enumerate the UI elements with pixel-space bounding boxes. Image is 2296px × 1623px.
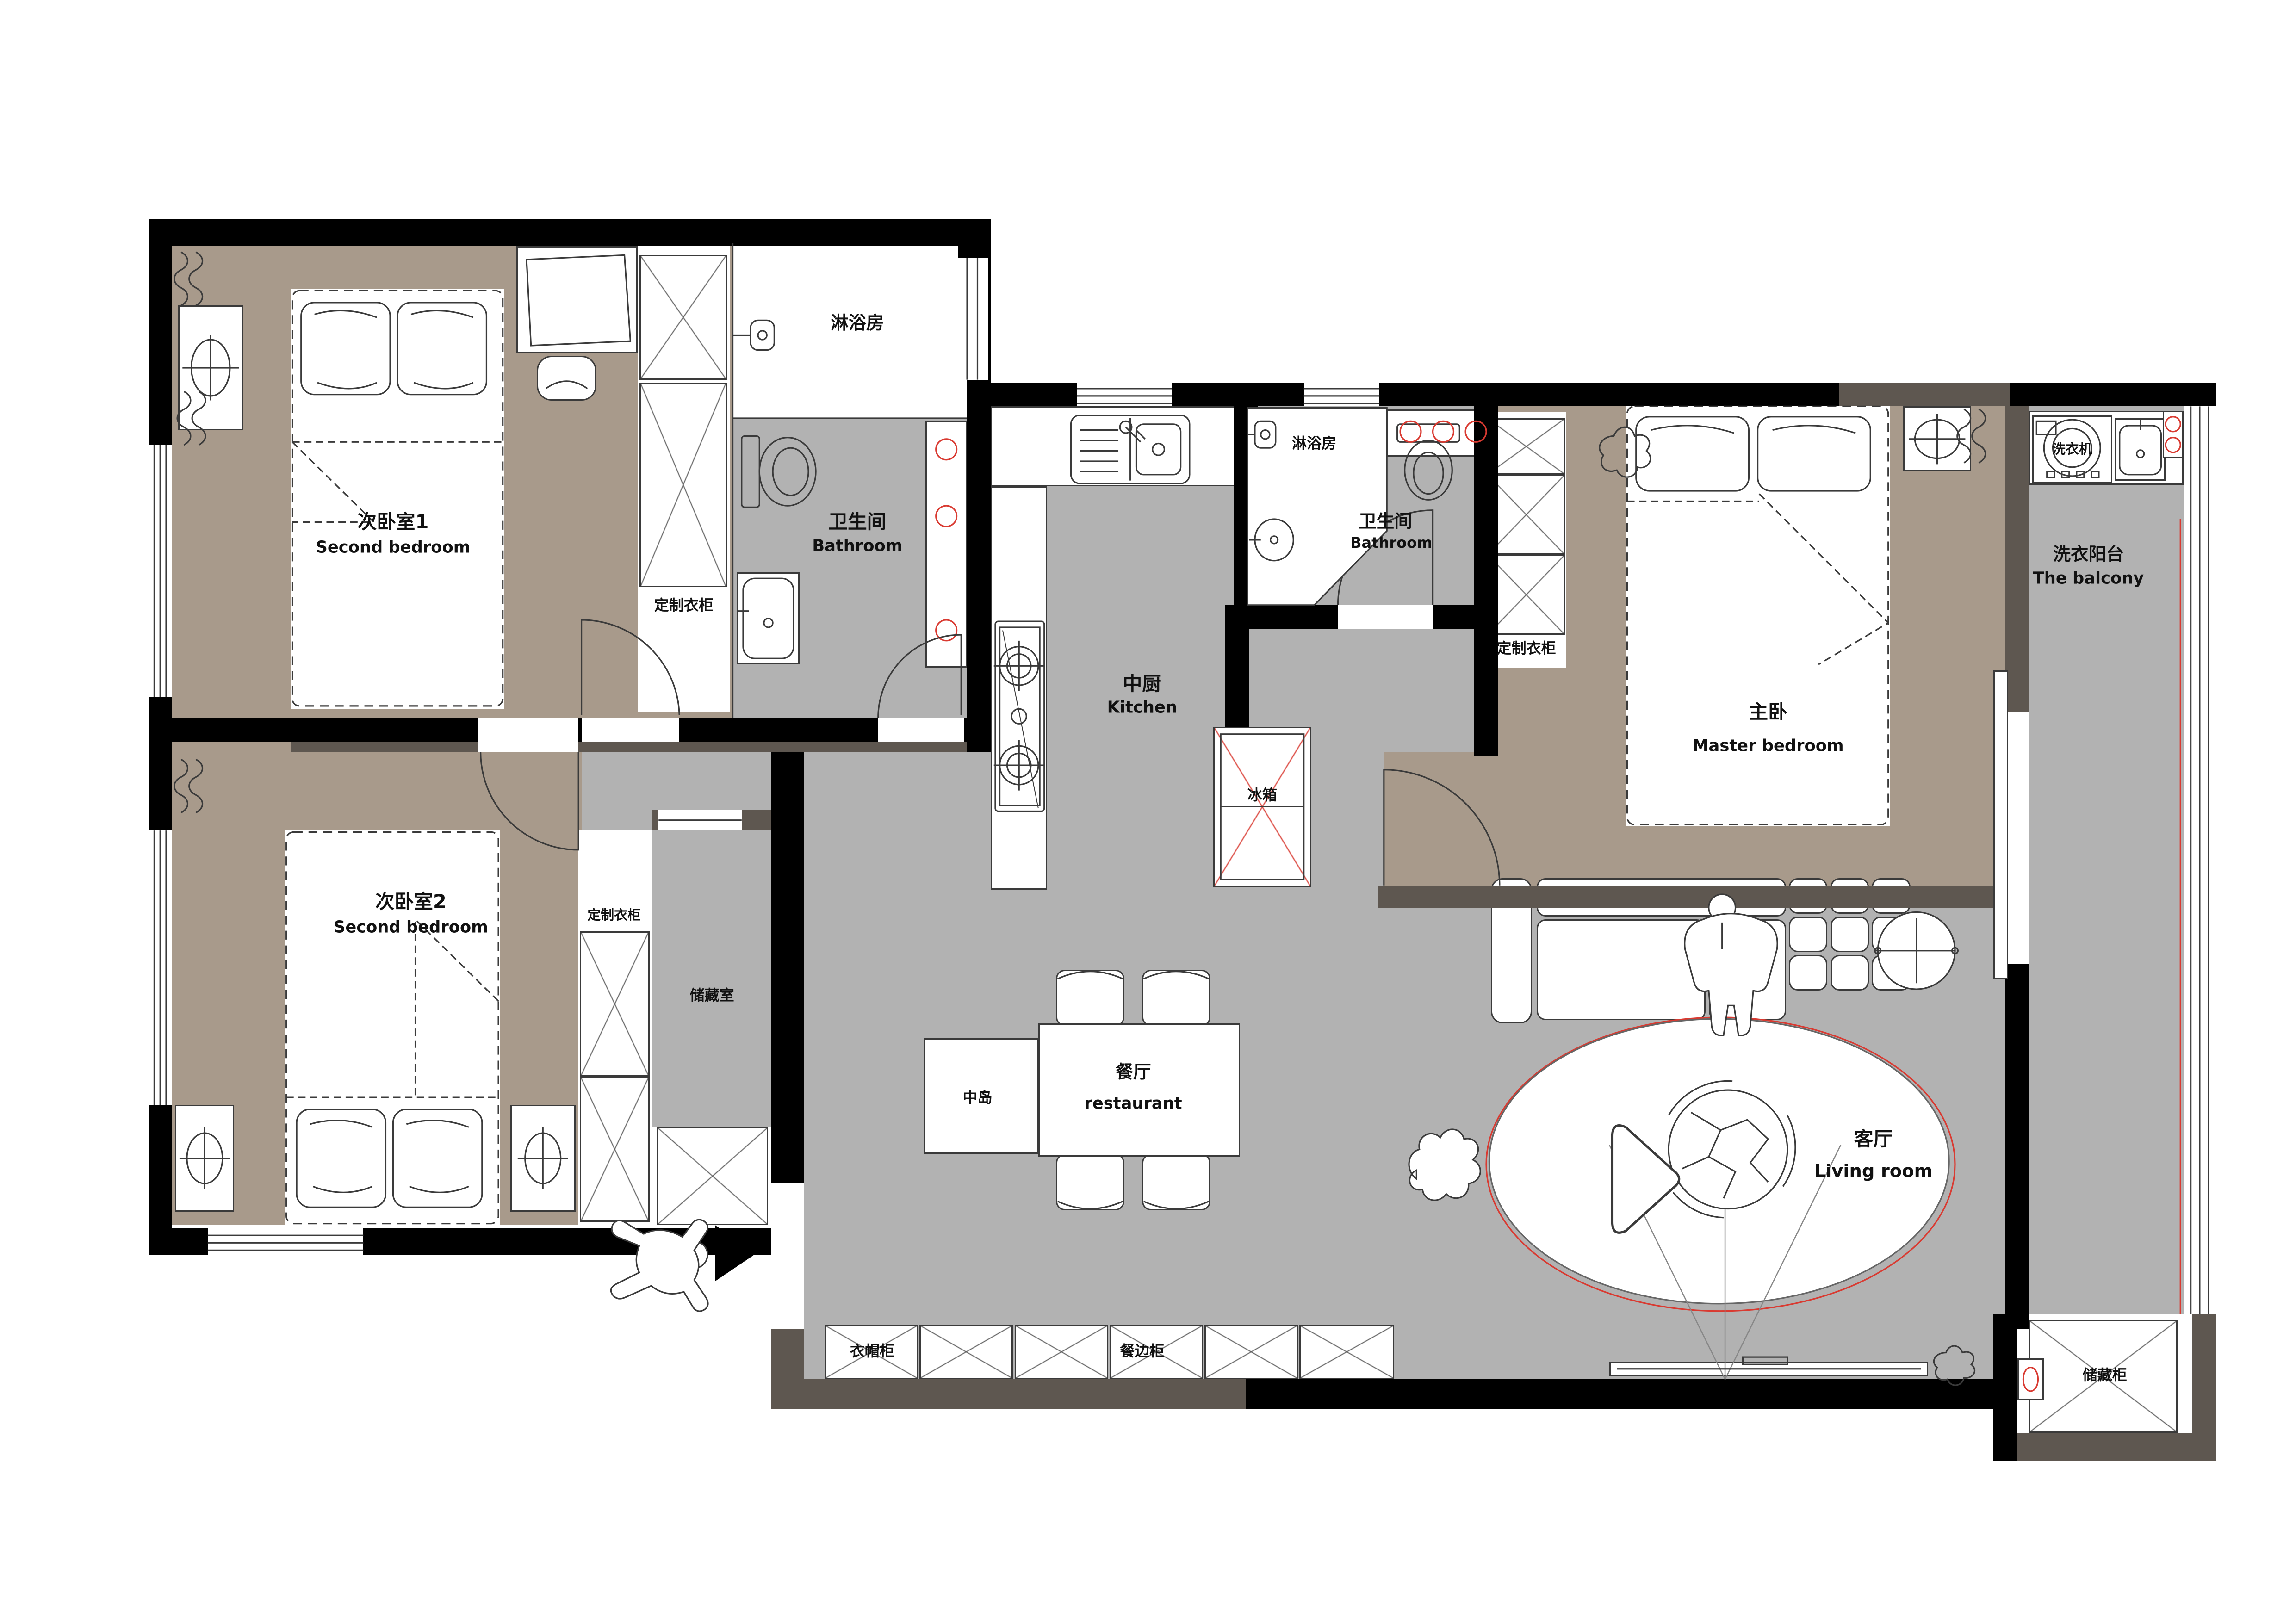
wardrobe1-box-top xyxy=(639,255,727,379)
wall xyxy=(149,752,172,830)
balcony-red-fixture xyxy=(2163,411,2184,458)
window-bedroom2-bottom xyxy=(208,1228,364,1255)
label-bedroom1-en: Second bedroom xyxy=(316,539,471,555)
fridge-box xyxy=(1213,727,1311,887)
partition-wall xyxy=(771,1329,804,1382)
bathroom2-door-opening xyxy=(1338,605,1433,629)
label-dining-zh: 餐厅 xyxy=(1116,1063,1151,1081)
label-kitchen-zh: 中厨 xyxy=(1123,674,1161,694)
window-kitchen xyxy=(1077,383,1172,406)
label-wardrobe1: 定制衣柜 xyxy=(654,598,714,613)
wardrobe2-box1 xyxy=(580,931,650,1077)
label-sideboard: 餐边柜 xyxy=(1120,1344,1164,1358)
bedroom1-door-opening xyxy=(582,718,680,742)
nightstand-bedroom1 xyxy=(178,305,243,430)
balcony-sink xyxy=(2115,418,2166,481)
label-bedroom2-en: Second bedroom xyxy=(334,919,488,935)
label-bathroom1-en: Bathroom xyxy=(812,538,902,554)
label-wardrobe-master: 定制衣柜 xyxy=(1496,641,1556,656)
storage-room-floor xyxy=(652,830,771,1127)
sofa-seat-2 xyxy=(1709,919,1786,1020)
partition-wall xyxy=(291,742,991,752)
wall xyxy=(1225,605,1249,727)
niche-red-fixture xyxy=(2017,1358,2044,1400)
cabinet-box xyxy=(919,1325,1013,1380)
balcony-door-opening xyxy=(2005,712,2029,964)
balcony-floor xyxy=(2029,406,2183,1314)
label-master-en: Master bedroom xyxy=(1692,738,1843,754)
wardrobe2-box2 xyxy=(580,1077,650,1222)
wall xyxy=(991,383,1498,406)
sofa-cushion xyxy=(1831,955,1869,991)
label-kitchen-en: Kitchen xyxy=(1107,699,1177,715)
window-bathroom2 xyxy=(1304,383,1379,406)
label-wardrobe2: 定制衣柜 xyxy=(587,908,640,922)
storage-door-opening xyxy=(658,810,742,830)
bath1-basin xyxy=(737,572,800,664)
wardrobe-master-box1 xyxy=(1488,418,1565,475)
label-dining-en: restaurant xyxy=(1085,1095,1182,1111)
label-master-zh: 主卧 xyxy=(1749,702,1787,722)
window-bedroom1 xyxy=(149,445,172,697)
partition-wall xyxy=(1839,383,2010,406)
partition-wall xyxy=(1378,886,1492,908)
partition-wall xyxy=(771,1379,1246,1409)
cabinet-box xyxy=(1015,1325,1108,1380)
nightstand-bedroom2-left xyxy=(175,1105,234,1212)
window-balcony xyxy=(2184,406,2213,1314)
label-cloak-cabinet: 衣帽柜 xyxy=(850,1344,894,1358)
bed1-fill xyxy=(291,289,504,709)
wardrobe1-box-bottom xyxy=(639,383,727,587)
label-living-en: Living room xyxy=(1814,1163,1933,1180)
wall xyxy=(1246,1379,2017,1409)
kitchen-counter-left xyxy=(991,486,1047,890)
partition-wall xyxy=(2017,1433,2216,1461)
wall xyxy=(1234,406,1258,605)
wall xyxy=(149,219,991,246)
wardrobe-master-box2 xyxy=(1488,475,1565,555)
partition-wall xyxy=(2005,406,2029,712)
label-balcony-en: The balcony xyxy=(2033,570,2144,587)
label-island: 中岛 xyxy=(962,1090,992,1105)
cabinet-box xyxy=(1204,1325,1298,1380)
label-shower1: 淋浴房 xyxy=(831,315,884,332)
tv-console xyxy=(1609,1362,1928,1376)
cabinet-box xyxy=(1299,1325,1394,1380)
bathroom1-door-opening xyxy=(878,718,964,742)
label-bedroom2-zh: 次卧室2 xyxy=(375,892,447,911)
duct-cap xyxy=(958,246,988,258)
label-bathroom2-zh: 卫生间 xyxy=(1359,513,1412,531)
label-balcony-zh: 洗衣阳台 xyxy=(2053,546,2124,564)
label-fridge: 冰箱 xyxy=(1247,787,1277,802)
partition-wall xyxy=(1492,886,2010,908)
balcony-door-leaf xyxy=(1993,670,2008,979)
nightstand-master xyxy=(1903,406,1971,471)
wall xyxy=(2010,383,2216,406)
dining-chair-1 xyxy=(1056,970,1124,1026)
dining-chair-4 xyxy=(1142,1154,1210,1210)
bed2-fill xyxy=(285,830,500,1225)
wall xyxy=(2005,964,2029,1329)
sofa-cushion xyxy=(1789,917,1827,952)
label-washing-machine: 洗衣机 xyxy=(2052,443,2092,456)
nightstand-bedroom2-right xyxy=(510,1105,576,1212)
sofa-cushion xyxy=(1789,955,1827,991)
storage-low-cabinet xyxy=(657,1127,768,1225)
sofa-cushion xyxy=(1872,955,1910,991)
duct-shaft xyxy=(958,258,988,380)
label-living-zh: 客厅 xyxy=(1854,1129,1893,1149)
entry-door xyxy=(771,1183,804,1329)
sofa-cushion xyxy=(1872,917,1910,952)
label-bedroom1-zh: 次卧室1 xyxy=(357,513,428,532)
stool-bedroom1 xyxy=(537,356,596,400)
wall xyxy=(771,752,804,1183)
bath1-counter xyxy=(925,421,967,667)
sofa-seat-1 xyxy=(1537,919,1706,1020)
partition-wall xyxy=(2192,1314,2216,1432)
window-bedroom2-left xyxy=(149,830,172,1105)
master-bed-fill xyxy=(1626,405,1890,826)
floor-plan: 次卧室1 Second bedroom 淋浴房 卫生间 Bathroom 定制衣… xyxy=(0,0,2296,1623)
kitchen-counter-top xyxy=(991,406,1246,486)
label-bathroom1-zh: 卫生间 xyxy=(828,513,886,532)
label-storage-room: 储藏室 xyxy=(690,988,734,1003)
label-shower2: 淋浴房 xyxy=(1292,436,1336,451)
dining-table xyxy=(1038,1023,1240,1157)
wall xyxy=(1474,406,1498,756)
label-bathroom2-en: Bathroom xyxy=(1350,535,1432,550)
bedroom2-door-opening xyxy=(478,718,578,752)
master-vestibule-floor xyxy=(1384,752,1492,886)
label-storage-cabinet: 储藏柜 xyxy=(2083,1368,2127,1382)
sofa-cushion xyxy=(1831,917,1869,952)
dining-chair-2 xyxy=(1142,970,1210,1026)
desk-bedroom1 xyxy=(516,246,638,353)
wall xyxy=(149,246,172,445)
dining-chair-3 xyxy=(1056,1154,1124,1210)
wardrobe-master-box3 xyxy=(1488,555,1565,635)
wall xyxy=(1993,1314,2017,1461)
